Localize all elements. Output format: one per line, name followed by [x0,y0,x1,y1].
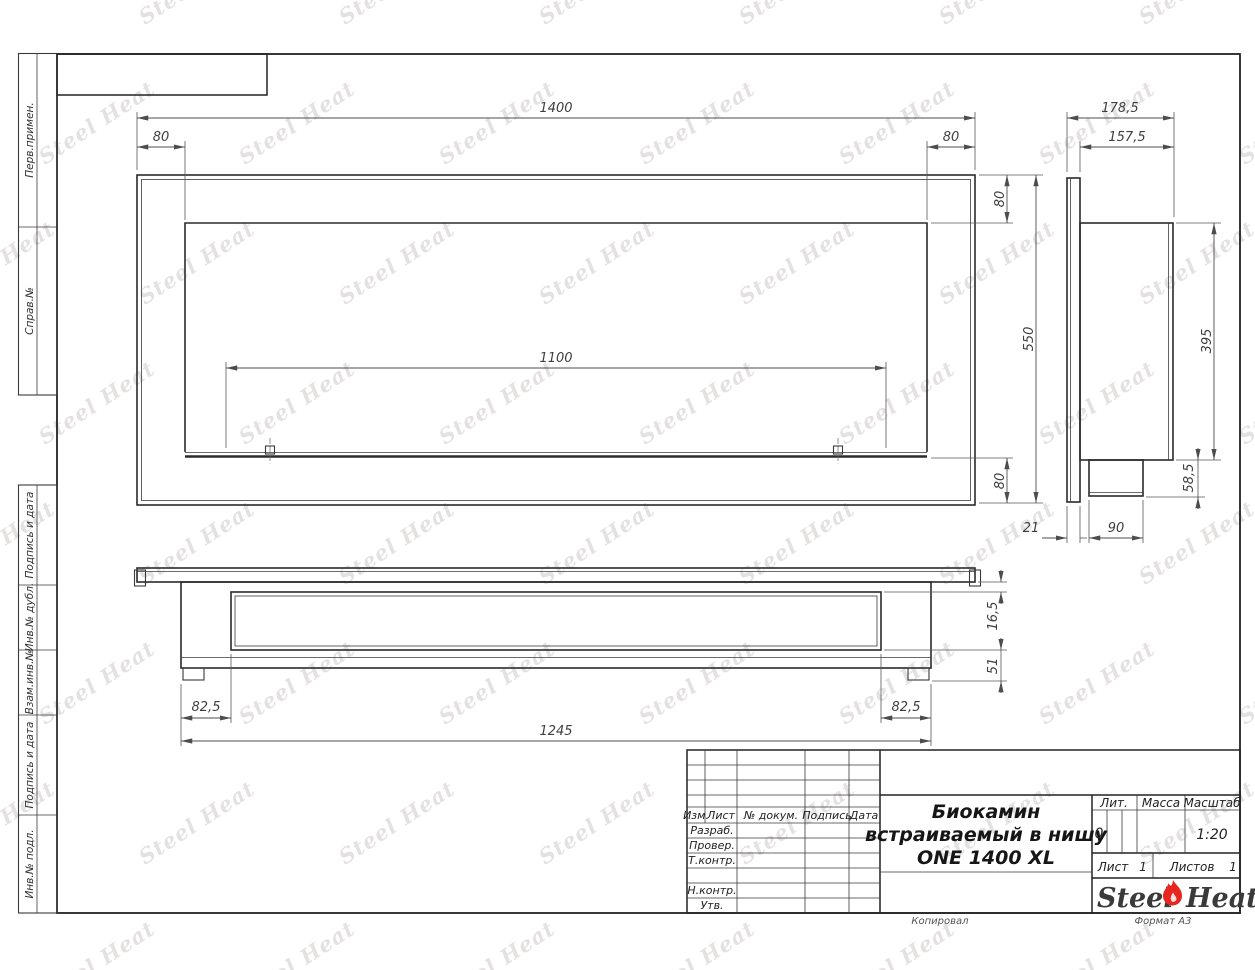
plan-opening-slot-inner-line [235,596,877,646]
col-doc: № докум. [743,809,798,822]
svg-text:1100: 1100 [539,351,572,366]
svg-text:16,5: 16,5 [986,602,1001,631]
doc-title-line1: Биокамин [932,801,1041,823]
side-body [1080,223,1173,460]
burner-clip-left [266,438,275,464]
plan-body [181,582,931,668]
dim-front-total-width: 1400 [137,101,975,170]
dim-plan-slot-to-back: 51 [884,638,1007,693]
svg-text:550: 550 [1022,327,1037,352]
sheets-label: Листов [1169,860,1215,874]
scale-label: Масштаб [1183,796,1241,810]
plan-left-foot [183,668,204,680]
margin-label-podpis-data-1: Подпись и дата [24,492,36,579]
svg-text:1245: 1245 [539,724,572,739]
svg-text:178,5: 178,5 [1101,101,1138,116]
plan-flange-bar [137,568,975,582]
svg-text:90: 90 [1108,521,1125,536]
row-utv: Утв. [700,899,723,912]
row-prover: Провер. [689,839,735,852]
col-date: Дата [849,809,879,822]
dim-front-burner-length: 1100 [226,351,886,448]
dim-plan-flange-to-slot: 16,5 [884,570,1007,630]
dim-side-body-height: 395 [1176,223,1221,460]
doc-title-line2: встраиваемый в нишу [865,824,1109,846]
col-izm: Изм. [683,809,709,822]
plan-view: 82,5 82,5 1245 16,5 [135,568,1008,746]
title-block-right-texts: Лит. Масса Масштаб 0 1:20 Лист 1 Листов … [1095,796,1242,874]
mass-label: Масса [1142,796,1180,810]
dim-side-bottom-box-width: 90 [1089,500,1143,543]
sheets-value: 1 [1229,860,1237,874]
svg-text:80: 80 [943,130,960,145]
technical-drawing: Перв.примен. Справ.№ Подпись и дата Инв.… [0,0,1255,970]
doc-title-line3: ONE 1400 XL [917,847,1055,869]
margin-label-perv-primen: Перв.примен. [24,102,36,177]
svg-text:51: 51 [986,658,1001,675]
sheet-label: Лист [1097,860,1129,874]
svg-text:80: 80 [993,191,1008,208]
left-margin-labels: Перв.примен. Справ.№ Подпись и дата Инв.… [24,102,36,898]
sheet-frame: Перв.примен. Справ.№ Подпись и дата Инв.… [19,54,1241,928]
svg-text:82,5: 82,5 [192,700,221,715]
plan-flange-left-cap [135,570,146,586]
corner-designation-cell [57,54,267,95]
brand-logo-heat: Heat [1185,883,1255,914]
lit-value: 0 [1095,826,1104,842]
plan-opening-slot [231,592,881,650]
brand-logo-steel: Steel [1097,883,1174,914]
dim-front-total-height: 550 [979,175,1043,503]
margin-label-sprav-no: Справ.№ [24,287,36,335]
svg-text:58,5: 58,5 [1182,464,1197,493]
front-view: 1400 80 80 80 550 [137,101,1043,505]
row-razrab: Разраб. [690,824,733,837]
dim-plan-body-width: 1245 [181,724,931,741]
dim-front-bottom-offset: 80 [931,458,1013,503]
front-opening [185,223,927,452]
dim-front-top-offset: 80 [931,175,1043,223]
brand-logo: Steel Heat [1097,880,1255,914]
svg-text:80: 80 [153,130,170,145]
footer-format-label: Формат А3 [1135,916,1192,927]
dim-side-body-depth: 157,5 [1080,130,1174,172]
dim-side-total-depth: 178,5 [1067,101,1174,217]
margin-label-inv-dubl: Инв.№ дубл. [24,583,36,652]
row-nkontr: Н.контр. [687,884,736,897]
lit-label: Лит. [1099,796,1128,810]
margin-label-inv-podl: Инв.№ подл. [24,829,36,898]
sheet-value: 1 [1139,860,1147,874]
dim-side-bottom-box-height: 58,5 [1146,448,1205,509]
drawing-sheet: Steel HeatSteel HeatSteel HeatSteel Heat… [0,0,1255,970]
svg-text:1400: 1400 [539,101,572,116]
margin-label-podpis-data-2: Подпись и дата [24,722,36,809]
frame-border [57,54,1240,913]
burner-clip-right [834,438,843,464]
side-view: 178,5 157,5 395 58,5 [1023,101,1221,543]
col-sign: Подпись [802,809,851,822]
side-front-flange [1067,178,1080,502]
col-list: Лист [706,809,735,822]
title-block: Изм. Лист № докум. Подпись Дата Разраб. … [683,750,1255,914]
scale-value: 1:20 [1196,827,1228,843]
margin-label-vzam-inv: Взам.инв.№ [24,650,36,715]
svg-text:82,5: 82,5 [892,700,921,715]
dim-side-flange-thickness: 21 [1023,506,1087,543]
svg-text:21: 21 [1023,521,1040,536]
side-bottom-box [1089,460,1143,496]
row-tkontr: Т.контр. [688,854,736,867]
svg-text:395: 395 [1200,329,1215,354]
svg-text:80: 80 [993,473,1008,490]
plan-right-foot [908,668,929,680]
footer-copied-label: Копировал [911,916,969,927]
title-block-name-cell: Биокамин встраиваемый в нишу ONE 1400 XL [865,801,1109,869]
svg-text:157,5: 157,5 [1108,130,1145,145]
